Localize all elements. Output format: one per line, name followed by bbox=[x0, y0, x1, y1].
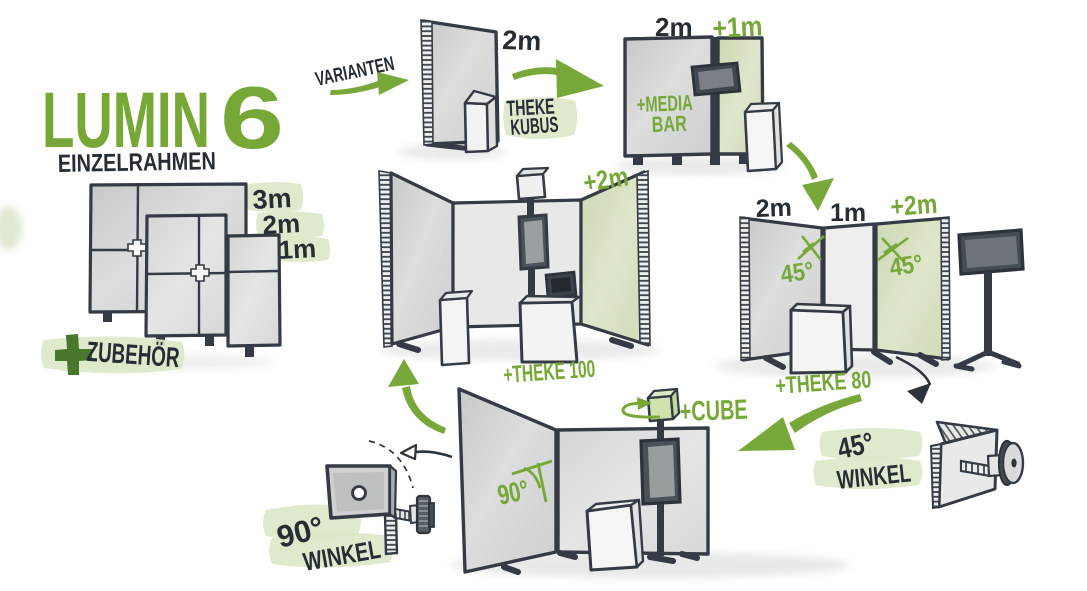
svg-text:+CUBE: +CUBE bbox=[679, 394, 748, 427]
svg-text:1m: 1m bbox=[278, 233, 317, 265]
svg-text:ZUBEHÖR: ZUBEHÖR bbox=[86, 336, 181, 373]
svg-text:45°: 45° bbox=[779, 257, 816, 289]
svg-text:+2m: +2m bbox=[889, 189, 938, 222]
svg-text:2m: 2m bbox=[655, 12, 693, 42]
svg-text:1m: 1m bbox=[830, 199, 866, 227]
svg-text:2m: 2m bbox=[502, 25, 542, 56]
svg-text:6: 6 bbox=[220, 68, 284, 167]
svg-text:2m: 2m bbox=[755, 194, 792, 223]
svg-text:KUBUS: KUBUS bbox=[510, 112, 560, 140]
svg-text:45°: 45° bbox=[888, 250, 925, 282]
svg-text:+1m: +1m bbox=[712, 10, 764, 44]
svg-text:90°: 90° bbox=[495, 474, 532, 511]
svg-text:BAR: BAR bbox=[651, 111, 687, 137]
svg-text:EINZELRAHMEN: EINZELRAHMEN bbox=[58, 147, 216, 178]
